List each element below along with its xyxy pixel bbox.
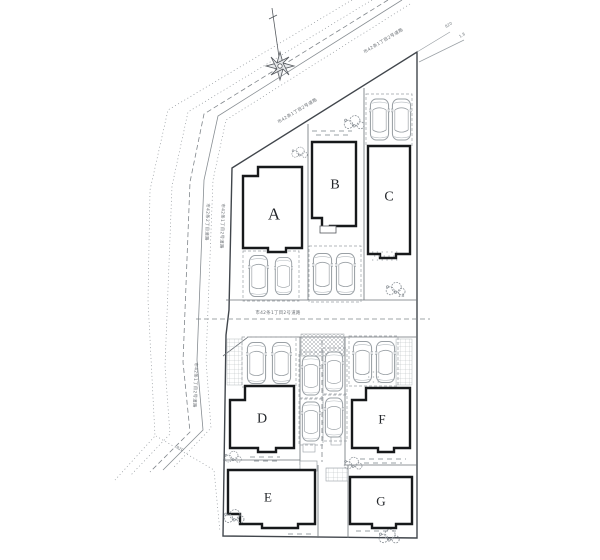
terrace-mark-b [312,131,352,135]
tree-icon [344,457,362,469]
lot-label-e: E [264,490,272,505]
car-icon [352,341,373,382]
car-icon [274,257,293,294]
leader-line-2 [419,40,464,62]
road-label-left-outer: 市42条2丁目道路 [203,203,211,241]
car-icon [324,398,344,437]
lot-label-f: F [378,412,385,427]
dim-label-1: 820 [444,20,454,28]
car-icon [271,342,292,383]
car-icon [391,99,412,140]
lot-label-g: G [376,494,385,509]
lot-label-d: D [257,412,267,427]
road-label-diagonal-lower: 市42条1丁目2号道路 [276,96,319,125]
north-star-icon [266,52,294,80]
middle-road: 市42条1丁目2号道路 [196,309,430,319]
dim-label-right-edge: 1.8 [398,293,405,298]
tree-icon [344,116,364,129]
dim-label-2: 1.8 [458,31,466,39]
car-icon [301,402,321,441]
lot-label-b: B [330,178,339,193]
car-icon [324,352,344,391]
entrance-porch-g [326,468,348,481]
site-plan-canvas: 市42条1丁目2号道路 市42条1丁目2号道路 市42条2丁目道路 市42条1丁… [0,0,600,560]
car-icon [248,255,269,296]
tree-icon [225,451,241,462]
porch-b [320,226,336,233]
car-icon [335,253,356,294]
road-label-diagonal-upper: 市42条1丁目2号道路 [362,26,405,55]
car-icon [301,356,321,395]
paver-strip-left [227,339,242,385]
road-label-left-inner: 市42条1丁目2号道路 [218,203,227,249]
road-label-middle: 市42条1丁目2号道路 [255,309,301,316]
terrace-mark-f [360,459,406,463]
car-icon [312,253,333,294]
tree-icon [379,529,399,543]
dim-label-road-bend: 820 [176,445,186,453]
lot-label-a: A [268,205,281,224]
tree-icon [292,147,307,157]
paver-strip-right [396,339,412,385]
compass [266,8,294,80]
road-label-left-lower: 市42条1丁目2号道路 [191,362,200,408]
car-icon [375,341,396,382]
car-icon [369,99,390,140]
car-icon [246,342,267,383]
lot-label-c: C [384,190,393,205]
road-bend-dotted-line [156,436,220,532]
utility-box-1 [303,444,315,452]
